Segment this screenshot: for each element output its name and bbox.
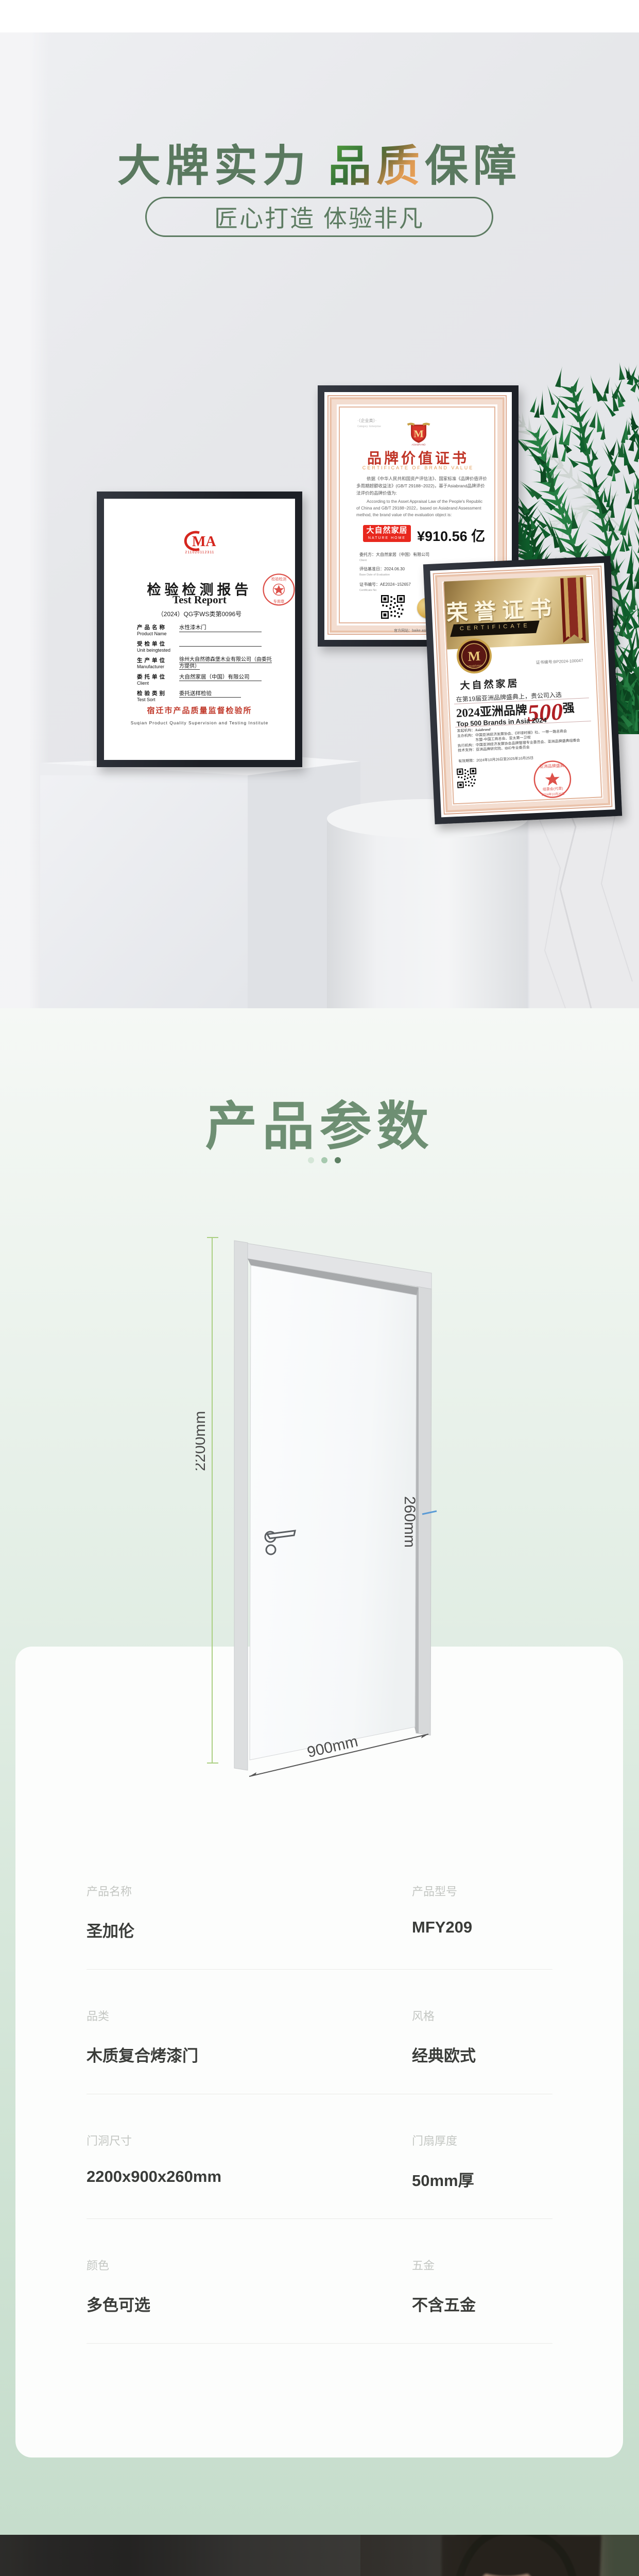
svg-text:M: M: [468, 649, 481, 664]
svg-text:ASIABRAND: ASIABRAND: [412, 443, 426, 446]
svg-text:检验检测: 检验检测: [271, 577, 286, 581]
svg-text:组委会(代章): 组委会(代章): [543, 786, 563, 792]
svg-text:亚洲品牌盛典: 亚洲品牌盛典: [540, 762, 564, 769]
svg-text:专用章: 专用章: [273, 599, 285, 604]
svg-text:2024年10月26日: 2024年10月26日: [542, 792, 565, 797]
svg-text:M: M: [413, 429, 423, 440]
svg-text:211020112311: 211020112311: [185, 551, 214, 554]
svg-text:2200mm: 2200mm: [196, 1411, 209, 1471]
svg-text:MA: MA: [192, 534, 216, 550]
svg-text:260mm: 260mm: [401, 1496, 418, 1548]
